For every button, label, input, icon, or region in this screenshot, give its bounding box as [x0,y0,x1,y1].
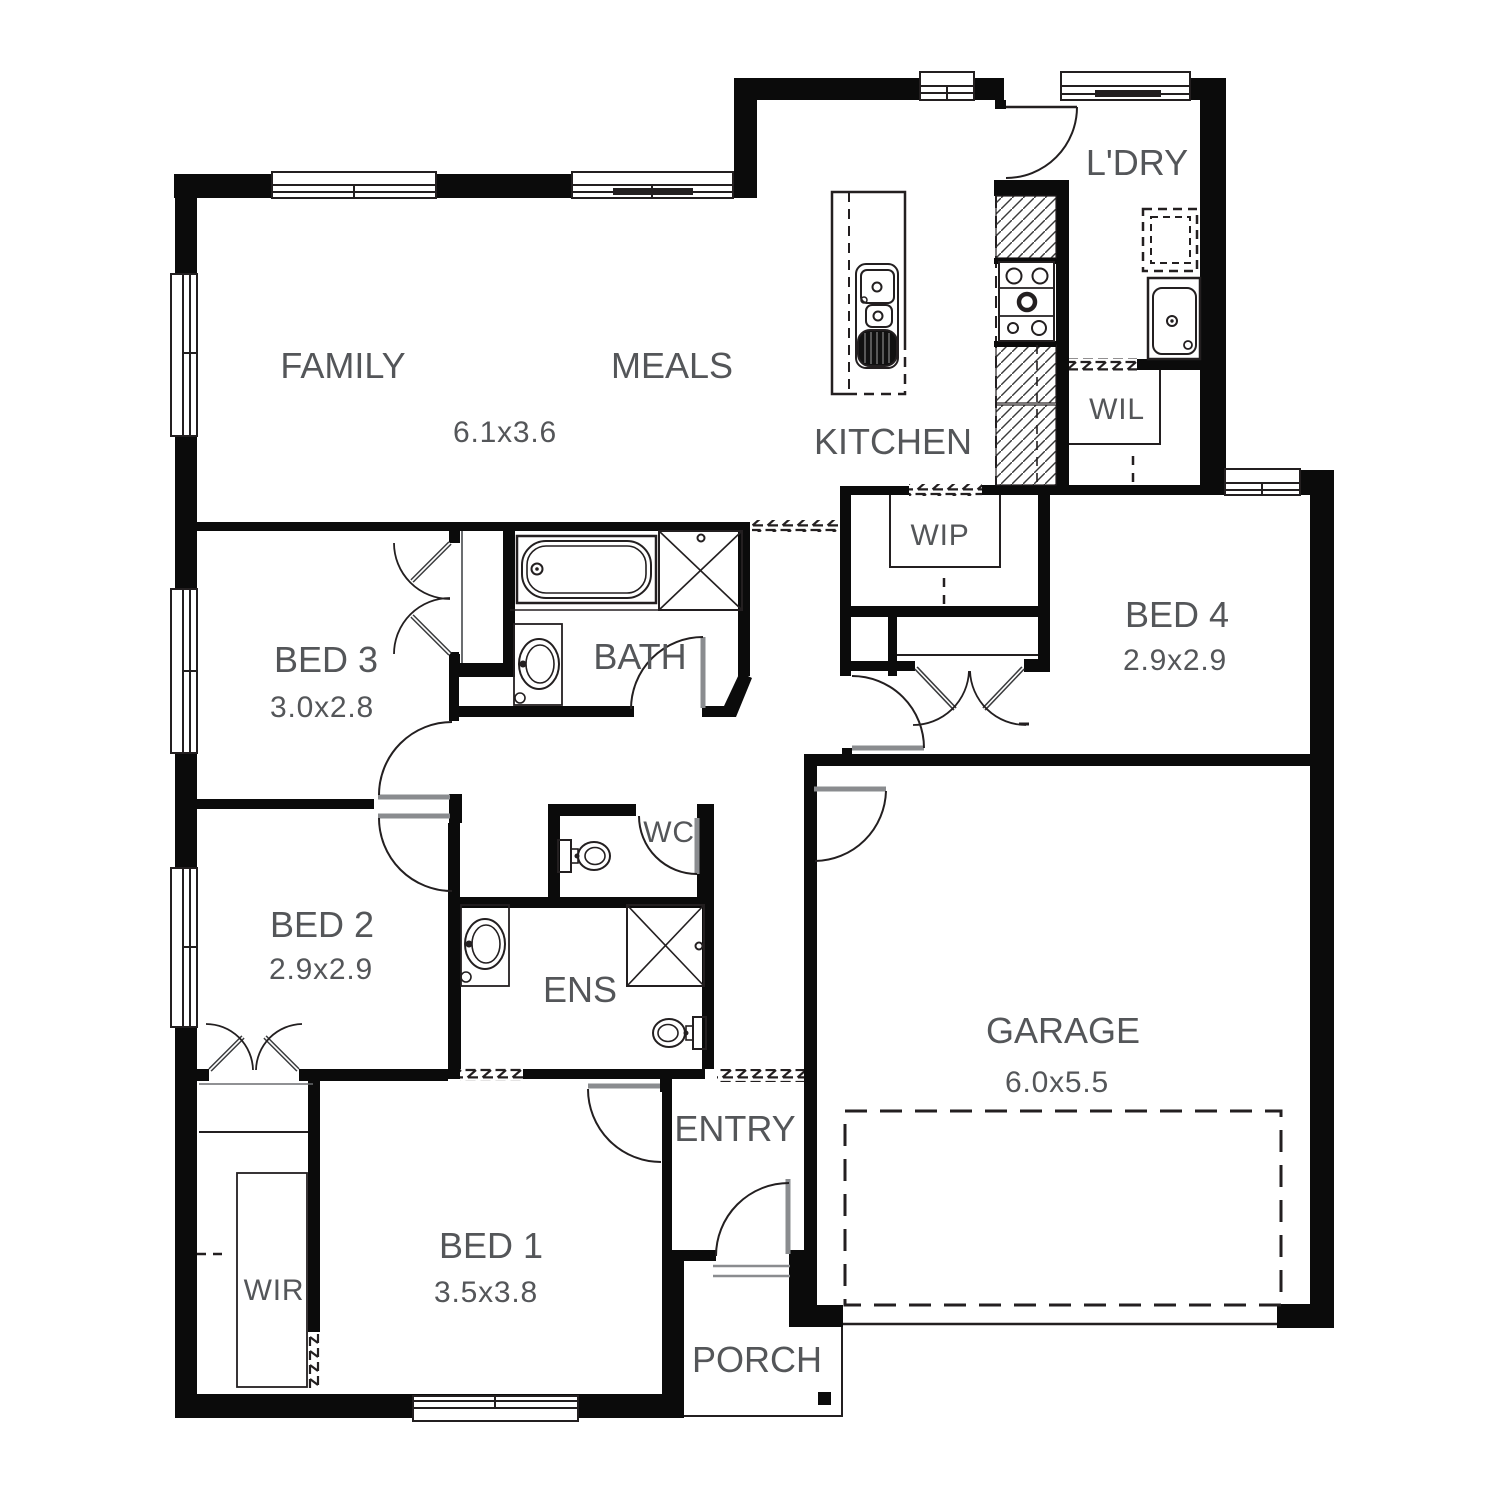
svg-text:WIL: WIL [1089,393,1145,426]
svg-text:WIP: WIP [910,519,969,552]
svg-text:2.9x2.9: 2.9x2.9 [1123,644,1227,677]
svg-text:6.1x3.6: 6.1x3.6 [453,416,557,449]
svg-text:WIR: WIR [244,1274,305,1307]
svg-text:BED 4: BED 4 [1125,594,1229,635]
svg-text:GARAGE: GARAGE [986,1010,1140,1051]
svg-text:2.9x2.9: 2.9x2.9 [269,953,373,986]
svg-text:MEALS: MEALS [611,345,733,386]
svg-text:L'DRY: L'DRY [1086,142,1188,183]
svg-text:FAMILY: FAMILY [280,345,405,386]
svg-text:BED 1: BED 1 [439,1225,543,1266]
svg-text:6.0x5.5: 6.0x5.5 [1005,1066,1109,1099]
svg-text:ENS: ENS [543,969,617,1010]
svg-text:KITCHEN: KITCHEN [814,421,972,462]
svg-text:WC: WC [643,816,695,849]
svg-text:BED 2: BED 2 [270,904,374,945]
svg-text:3.0x2.8: 3.0x2.8 [270,691,374,724]
svg-text:PORCH: PORCH [692,1339,822,1380]
svg-text:ENTRY: ENTRY [674,1108,795,1149]
svg-text:BATH: BATH [593,636,686,677]
svg-text:3.5x3.8: 3.5x3.8 [434,1276,538,1309]
svg-text:BED 3: BED 3 [274,639,378,680]
